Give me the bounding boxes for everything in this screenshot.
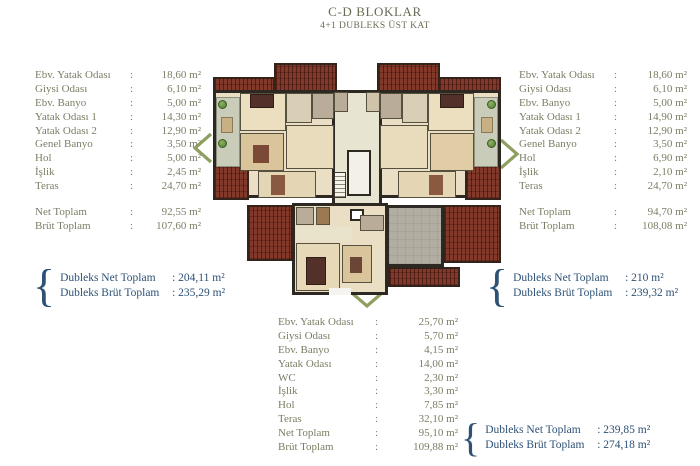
area-label: Ebv. Yatak Odası — [278, 316, 375, 330]
curly-brace: { — [461, 420, 480, 456]
rug — [253, 145, 269, 163]
area-row: Ebv. Yatak Odası 18,60 m² — [519, 69, 687, 83]
area-label: Ebv. Banyo — [519, 97, 614, 111]
area-value: 94,70 m² — [624, 206, 687, 220]
area-value: 2,10 m² — [624, 166, 687, 180]
area-label: Ebv. Banyo — [35, 97, 130, 111]
area-value: 32,10 m² — [385, 413, 458, 427]
area-label: Giysi Odası — [278, 330, 375, 344]
roof-top-left-b — [274, 63, 337, 93]
area-row: Ebv. Banyo 4,15 m² — [278, 344, 458, 358]
duplex-rows: Dubleks Net Toplam 204,11 m² Dubleks Brü… — [60, 271, 225, 302]
roof-top-right-a — [377, 63, 440, 93]
colon-separator — [130, 83, 140, 97]
area-row: Brüt Toplam 109,88 m² — [278, 441, 458, 455]
bed — [440, 94, 464, 108]
area-row: Hol 5,00 m² — [35, 152, 201, 166]
colon-separator — [614, 111, 624, 125]
area-label: Brüt Toplam — [519, 220, 614, 234]
area-value: 5,00 m² — [624, 97, 687, 111]
area-label: WC — [278, 372, 375, 386]
area-row: Yatak Odası 1 14,30 m² — [35, 111, 201, 125]
area-value: 5,00 m² — [140, 97, 201, 111]
area-row: Yatak Odası 1 14,90 m² — [519, 111, 687, 125]
area-row: Giysi Odası 6,10 m² — [35, 83, 201, 97]
colon-separator — [130, 180, 140, 194]
area-value: 6,10 m² — [624, 83, 687, 97]
left-room-bottom — [258, 171, 316, 198]
colon-separator — [130, 152, 140, 166]
lower-hall — [296, 227, 352, 241]
area-value: 2,30 m² — [385, 372, 458, 386]
left-bathroom — [312, 93, 334, 119]
left-hall — [286, 93, 312, 123]
core-bath-left — [334, 92, 348, 112]
floor-plan — [211, 57, 503, 309]
colon-separator — [130, 111, 140, 125]
area-row: İşlik 2,45 m² — [35, 166, 201, 180]
area-value: 24,70 m² — [140, 180, 201, 194]
colon-separator — [130, 138, 140, 152]
duplex-total-label: Dubleks Brüt Toplam — [485, 438, 597, 454]
area-row: Net Toplam 94,70 m² — [519, 206, 687, 220]
colon-separator — [375, 372, 385, 386]
left-duplex-totals: { Dubleks Net Toplam 204,11 m² Dubleks B… — [33, 266, 225, 306]
area-row: Brüt Toplam 107,60 m² — [35, 220, 201, 234]
duplex-total-value: 274,18 m² — [597, 438, 650, 454]
right-duplex-totals: { Dubleks Net Toplam 210 m² Dubleks Brüt… — [486, 266, 678, 306]
page-title: C-D BLOKLAR 4+1 DUBLEKS ÜST KAT — [225, 4, 525, 31]
roof-bottom-center-right — [388, 267, 460, 287]
colon-separator — [614, 152, 624, 166]
area-row: Brüt Toplam 108,08 m² — [519, 220, 687, 234]
colon-separator — [614, 125, 624, 139]
area-label: Ebv. Banyo — [278, 344, 375, 358]
area-label: Ebv. Yatak Odası — [519, 69, 614, 83]
area-label: Net Toplam — [519, 206, 614, 220]
area-row: Teras 32,10 m² — [278, 413, 458, 427]
right-unit-area-list: Ebv. Yatak Odası 18,60 m² Giysi Odası 6,… — [519, 69, 687, 194]
left-unit-totals: Net Toplam 92,55 m² Brüt Toplam 107,60 m… — [35, 206, 201, 234]
area-row: Giysi Odası 6,10 m² — [519, 83, 687, 97]
floor-plan-brochure-page: { "title": { "line1": "C-D BLOKLAR", "li… — [0, 0, 700, 466]
area-label: Yatak Odası 2 — [519, 125, 614, 139]
area-row: Ebv. Yatak Odası 25,70 m² — [278, 316, 458, 330]
colon-separator — [130, 125, 140, 139]
area-label: Yatak Odası 2 — [35, 125, 130, 139]
area-row: Net Toplam 92,55 m² — [35, 206, 201, 220]
area-row: Giysi Odası 5,70 m² — [278, 330, 458, 344]
area-label: Net Toplam — [278, 427, 375, 441]
area-value: 12,90 m² — [624, 125, 687, 139]
area-label: Teras — [278, 413, 375, 427]
duplex-total-row: Dubleks Net Toplam 204,11 m² — [60, 271, 225, 287]
colon-separator — [375, 385, 385, 399]
duplex-total-label: Dubleks Net Toplam — [485, 423, 597, 439]
area-row: Hol 6,90 m² — [519, 152, 687, 166]
area-label: Hol — [278, 399, 375, 413]
area-label: Hol — [519, 152, 614, 166]
area-value: 109,88 m² — [385, 441, 458, 455]
duplex-total-row: Dubleks Net Toplam 239,85 m² — [485, 423, 650, 439]
area-row: Teras 24,70 m² — [35, 180, 201, 194]
roof-bottom-left — [247, 205, 293, 261]
colon-separator — [130, 220, 140, 234]
duplex-total-value: 210 m² — [625, 271, 664, 287]
colon-separator — [614, 166, 624, 180]
colon-separator — [614, 83, 624, 97]
area-row: İşlik 2,10 m² — [519, 166, 687, 180]
lower-bathroom — [296, 207, 314, 225]
duplex-rows: Dubleks Net Toplam 239,85 m² Dubleks Brü… — [485, 423, 650, 454]
right-hall — [402, 93, 428, 123]
colon-separator — [614, 180, 624, 194]
colon-separator — [375, 427, 385, 441]
area-row: Ebv. Yatak Odası 18,60 m² — [35, 69, 201, 83]
area-row: Teras 24,70 m² — [519, 180, 687, 194]
area-value: 5,70 m² — [385, 330, 458, 344]
area-label: İşlik — [278, 385, 375, 399]
area-label: Genel Banyo — [519, 138, 614, 152]
area-row: Yatak Odası 2 12,90 m² — [519, 125, 687, 139]
area-label: Teras — [519, 180, 614, 194]
area-label: Brüt Toplam — [35, 220, 130, 234]
area-label: Hol — [35, 152, 130, 166]
plant-icon — [487, 139, 496, 148]
area-row: WC 2,30 m² — [278, 372, 458, 386]
curly-brace: { — [33, 266, 55, 306]
chevron-left-icon — [191, 131, 213, 165]
area-label: Giysi Odası — [35, 83, 130, 97]
area-row: Ebv. Banyo 5,00 m² — [519, 97, 687, 111]
bed — [306, 257, 326, 285]
stairwell — [334, 172, 346, 198]
core-bath-right — [366, 92, 380, 112]
colon-separator — [375, 358, 385, 372]
colon-separator — [614, 69, 624, 83]
terrace-table — [481, 117, 493, 133]
area-label: Genel Banyo — [35, 138, 130, 152]
area-value: 2,45 m² — [140, 166, 201, 180]
right-unit-totals: Net Toplam 94,70 m² Brüt Toplam 108,08 m… — [519, 206, 687, 234]
area-label: İşlik — [519, 166, 614, 180]
area-value: 95,10 m² — [385, 427, 458, 441]
colon-separator — [375, 316, 385, 330]
duplex-total-value: 239,32 m² — [625, 286, 678, 302]
area-label: Yatak Odası 1 — [35, 111, 130, 125]
right-room-mid — [380, 125, 428, 169]
area-row: Genel Banyo 3,50 m² — [35, 138, 201, 152]
area-row: İşlik 3,30 m² — [278, 385, 458, 399]
duplex-rows: Dubleks Net Toplam 210 m² Dubleks Brüt T… — [513, 271, 678, 302]
area-value: 6,90 m² — [624, 152, 687, 166]
area-label: İşlik — [35, 166, 130, 180]
area-row: Ebv. Banyo 5,00 m² — [35, 97, 201, 111]
duplex-total-value: 239,85 m² — [597, 423, 650, 439]
stair-core-room — [347, 150, 371, 196]
area-value: 14,00 m² — [385, 358, 458, 372]
colon-separator — [375, 413, 385, 427]
plant-icon — [218, 100, 227, 109]
colon-separator — [130, 97, 140, 111]
floor-subtitle: 4+1 DUBLEKS ÜST KAT — [225, 21, 525, 31]
roof-bottom-right — [443, 205, 501, 263]
lower-unit-area-list: Ebv. Yatak Odası 25,70 m² Giysi Odası 5,… — [278, 316, 458, 427]
colon-separator — [375, 330, 385, 344]
area-row: Net Toplam 95,10 m² — [278, 427, 458, 441]
colon-separator — [375, 441, 385, 455]
area-value: 107,60 m² — [140, 220, 201, 234]
area-row: Genel Banyo 3,50 m² — [519, 138, 687, 152]
bed — [271, 175, 285, 195]
right-room-bottom — [398, 171, 456, 198]
duplex-total-label: Dubleks Brüt Toplam — [513, 286, 625, 302]
area-label: Teras — [35, 180, 130, 194]
colon-separator — [130, 69, 140, 83]
area-value: 3,50 m² — [624, 138, 687, 152]
area-value: 4,15 m² — [385, 344, 458, 358]
area-value: 14,90 m² — [624, 111, 687, 125]
duplex-total-label: Dubleks Net Toplam — [513, 271, 625, 287]
colon-separator — [614, 220, 624, 234]
area-value: 7,85 m² — [385, 399, 458, 413]
area-value: 3,30 m² — [385, 385, 458, 399]
plant-icon — [487, 100, 496, 109]
colon-separator — [614, 97, 624, 111]
left-unit-area-list: Ebv. Yatak Odası 18,60 m² Giysi Odası 6,… — [35, 69, 201, 194]
colon-separator — [614, 138, 624, 152]
rug — [350, 257, 362, 273]
colon-separator — [130, 206, 140, 220]
colon-separator — [375, 344, 385, 358]
area-label: Yatak Odası — [278, 358, 375, 372]
area-row: Yatak Odası 2 12,90 m² — [35, 125, 201, 139]
area-label: Yatak Odası 1 — [519, 111, 614, 125]
duplex-total-row: Dubleks Brüt Toplam 235,29 m² — [60, 286, 225, 302]
area-value: 25,70 m² — [385, 316, 458, 330]
lower-closet — [316, 207, 330, 225]
area-label: Ebv. Yatak Odası — [35, 69, 130, 83]
left-room-mid — [286, 125, 334, 169]
area-value: 18,60 m² — [140, 69, 201, 83]
colon-separator — [375, 399, 385, 413]
area-label: Brüt Toplam — [278, 441, 375, 455]
terrace-table — [221, 117, 233, 133]
area-label: Giysi Odası — [519, 83, 614, 97]
area-row: Hol 7,85 m² — [278, 399, 458, 413]
area-row: Yatak Odası 14,00 m² — [278, 358, 458, 372]
area-value: 24,70 m² — [624, 180, 687, 194]
area-value: 108,08 m² — [624, 220, 687, 234]
duplex-total-label: Dubleks Net Toplam — [60, 271, 172, 287]
right-bathroom — [380, 93, 402, 119]
lower-terrace-gray — [386, 205, 444, 267]
bed — [250, 94, 274, 108]
area-value: 92,55 m² — [140, 206, 201, 220]
area-label: Net Toplam — [35, 206, 130, 220]
entry-door-gap — [329, 288, 351, 295]
colon-separator — [130, 166, 140, 180]
area-value: 18,60 m² — [624, 69, 687, 83]
right-bedroom-2 — [430, 133, 474, 171]
lower-unit-totals: Net Toplam 95,10 m² Brüt Toplam 109,88 m… — [278, 427, 458, 455]
duplex-total-row: Dubleks Brüt Toplam 274,18 m² — [485, 438, 650, 454]
area-value: 14,30 m² — [140, 111, 201, 125]
block-title: C-D BLOKLAR — [225, 4, 525, 20]
bed — [429, 175, 443, 195]
lower-duplex-totals: { Dubleks Net Toplam 239,85 m² Dubleks B… — [461, 420, 650, 456]
lower-wc — [360, 215, 384, 231]
duplex-total-label: Dubleks Brüt Toplam — [60, 286, 172, 302]
area-value: 6,10 m² — [140, 83, 201, 97]
duplex-total-row: Dubleks Net Toplam 210 m² — [513, 271, 678, 287]
plant-icon — [218, 139, 227, 148]
colon-separator — [614, 206, 624, 220]
duplex-total-row: Dubleks Brüt Toplam 239,32 m² — [513, 286, 678, 302]
